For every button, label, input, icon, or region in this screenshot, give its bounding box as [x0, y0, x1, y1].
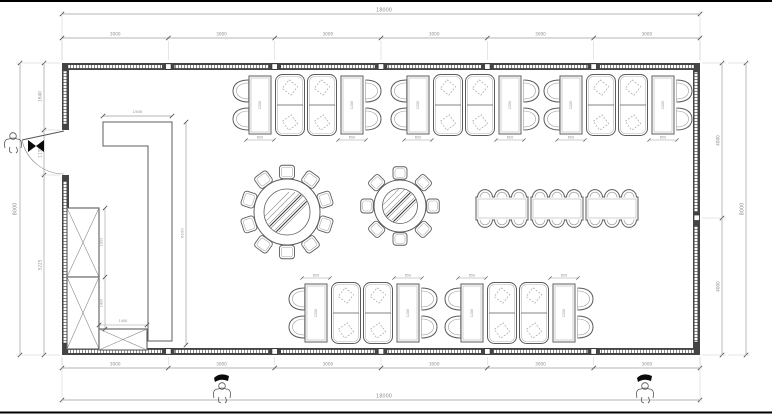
window-strip: [493, 65, 587, 69]
booth-sofa: [434, 75, 463, 136]
table-length-label: 1200: [406, 309, 410, 317]
dim-bottom-bay: 3000: [322, 362, 333, 367]
tub-chair: [524, 80, 540, 102]
window-strip: [600, 350, 694, 354]
arch-chair: [550, 190, 565, 198]
cabinet-dim-label: 1900: [100, 238, 104, 247]
dining-group: 12006501200650: [233, 75, 381, 142]
dining-group: 12006501200650: [544, 75, 692, 142]
dim-top-bay: 3000: [429, 32, 440, 37]
cabinet-dim-label: 1400: [100, 299, 104, 308]
tub-chair: [233, 108, 249, 130]
table-width-label: 650: [561, 273, 567, 277]
floor-plan-sheet: 3000300030003000300030003000300030003000…: [0, 0, 772, 414]
round-table-chair: [393, 233, 407, 246]
window-strip: [63, 181, 67, 343]
dim-right-seg: 4000: [716, 281, 721, 292]
dining-group: 12006501200650: [445, 273, 593, 343]
round-table-10-seats: [240, 165, 334, 259]
banquet-table: [531, 197, 583, 220]
table-length-label: 1200: [562, 309, 566, 317]
booth-sofa: [619, 75, 648, 136]
dim-right-overall: 8000: [740, 203, 746, 216]
dining-group: 12006501200650: [289, 273, 437, 343]
column-marker: [485, 349, 491, 355]
booth-sofa: [466, 75, 495, 136]
window-strip: [281, 65, 375, 69]
dim-bottom-overall: 18000: [376, 394, 392, 400]
dim-top-bay: 3000: [535, 32, 546, 37]
hat-icon: [214, 374, 229, 382]
tub-chair: [391, 108, 407, 130]
arch-chair: [588, 190, 603, 198]
round-table-chair: [393, 167, 407, 180]
entrance-marker-icon: [28, 140, 44, 152]
banquet-table: [586, 197, 638, 220]
tub-chair: [422, 288, 438, 310]
column-marker: [166, 349, 172, 355]
column-marker: [272, 64, 278, 70]
dim-bottom-bay: 3000: [641, 362, 652, 367]
tub-chair: [544, 108, 560, 130]
booth-sofa: [488, 283, 517, 344]
column-marker: [485, 64, 491, 70]
arch-chair: [478, 220, 493, 228]
generated-plan: 3000300030003000300030003000300030003000…: [5, 11, 751, 403]
table-width-label: 650: [660, 135, 666, 139]
counter-return-label: 6100: [180, 228, 185, 238]
column-marker: [694, 215, 700, 221]
arch-chair: [495, 190, 510, 198]
window-strip: [387, 350, 481, 354]
cabinet-dim-label: 1400: [119, 319, 128, 323]
table-length-label: 1200: [416, 101, 420, 109]
tub-chair: [391, 80, 407, 102]
table-width-label: 650: [313, 273, 319, 277]
tub-chair: [677, 80, 693, 102]
window-strip: [174, 65, 268, 69]
table-length-label: 1200: [258, 101, 262, 109]
dim-left-overall: 8000: [13, 203, 19, 216]
dim-top-bay: 3000: [322, 32, 333, 37]
arch-chair: [622, 190, 637, 198]
window-strip: [694, 226, 698, 342]
floor-plan-drawing: 3000300030003000300030003000300030003000…: [0, 0, 772, 414]
arch-chair: [622, 220, 637, 228]
column-marker: [591, 64, 597, 70]
dim-top-bay: 3000: [641, 32, 652, 37]
round-table-chair: [361, 199, 374, 213]
window-strip: [68, 65, 162, 69]
table-length-label: 1200: [314, 309, 318, 317]
booth-sofa: [276, 75, 305, 136]
dim-left-seg: 1640: [38, 91, 43, 102]
tub-chair: [422, 316, 438, 338]
booth-sofa: [364, 283, 393, 344]
banquet-table: [476, 197, 528, 220]
tub-chair: [445, 316, 461, 338]
arch-chair: [605, 220, 620, 228]
dim-bottom-bay: 3000: [216, 362, 227, 367]
table-length-label: 1200: [470, 309, 474, 317]
booth-sofa: [587, 75, 616, 136]
window-strip: [63, 71, 67, 124]
tub-chair: [445, 288, 461, 310]
arch-chair: [588, 220, 603, 228]
round-table-chair: [280, 245, 295, 259]
column-marker: [378, 64, 384, 70]
table-width-label: 650: [415, 135, 421, 139]
arch-chair: [533, 220, 548, 228]
tub-chair: [289, 316, 305, 338]
arch-chair: [567, 220, 582, 228]
table-length-label: 1200: [569, 101, 573, 109]
dim-right-seg: 4000: [716, 135, 721, 146]
window-strip: [694, 72, 698, 212]
dim-bottom-bay: 3000: [429, 362, 440, 367]
dim-top-overall: 18000: [376, 8, 392, 14]
tub-chair: [677, 108, 693, 130]
arch-chair: [512, 220, 527, 228]
tub-chair: [366, 80, 382, 102]
arch-chair: [495, 220, 510, 228]
dim-bottom-bay: 3000: [535, 362, 546, 367]
table-width-label: 650: [257, 135, 263, 139]
table-length-label: 1200: [661, 101, 665, 109]
arch-chair: [605, 190, 620, 198]
table-width-label: 650: [349, 135, 355, 139]
round-table-chair: [280, 165, 295, 179]
hat-icon: [637, 374, 652, 382]
dim-top-bay: 3000: [110, 32, 121, 37]
dim-left-seg: 5225: [38, 259, 43, 270]
table-width-label: 650: [568, 135, 574, 139]
window-strip: [387, 65, 481, 69]
tub-chair: [524, 108, 540, 130]
window-strip: [174, 350, 268, 354]
scale-figure-bottom-left: [214, 374, 231, 403]
window-strip: [281, 350, 375, 354]
arch-chair: [478, 190, 493, 198]
tub-chair: [578, 288, 594, 310]
service-counter: [103, 122, 172, 341]
scale-figure-bottom-right: [637, 374, 654, 403]
round-table-chair: [427, 199, 440, 213]
banquet-table-row: [476, 190, 638, 228]
tub-chair: [289, 288, 305, 310]
dining-group: 12006501200650: [391, 75, 539, 142]
table-width-label: 650: [469, 273, 475, 277]
door-leaf: [22, 131, 64, 140]
table-width-label: 650: [507, 135, 513, 139]
booth-sofa: [520, 283, 549, 344]
table-length-label: 1200: [350, 101, 354, 109]
tub-chair: [578, 316, 594, 338]
tub-chair: [366, 108, 382, 130]
column-marker: [166, 64, 172, 70]
arch-chair: [550, 220, 565, 228]
window-strip: [493, 350, 587, 354]
table-width-label: 650: [405, 273, 411, 277]
dim-bottom-bay: 3000: [110, 362, 121, 367]
table-length-label: 1200: [508, 101, 512, 109]
booth-sofa: [332, 283, 361, 344]
tub-chair: [233, 80, 249, 102]
window-strip: [600, 65, 694, 69]
column-marker: [378, 349, 384, 355]
dim-top-bay: 3000: [216, 32, 227, 37]
arch-chair: [512, 190, 527, 198]
scale-figure-entrance: [5, 133, 22, 153]
arch-chair: [533, 190, 548, 198]
arch-chair: [567, 190, 582, 198]
tub-chair: [544, 80, 560, 102]
counter-width-label: 1500: [133, 109, 143, 114]
booth-sofa: [308, 75, 337, 136]
round-table-8-seats: [361, 167, 440, 246]
column-marker: [591, 349, 597, 355]
column-marker: [272, 349, 278, 355]
